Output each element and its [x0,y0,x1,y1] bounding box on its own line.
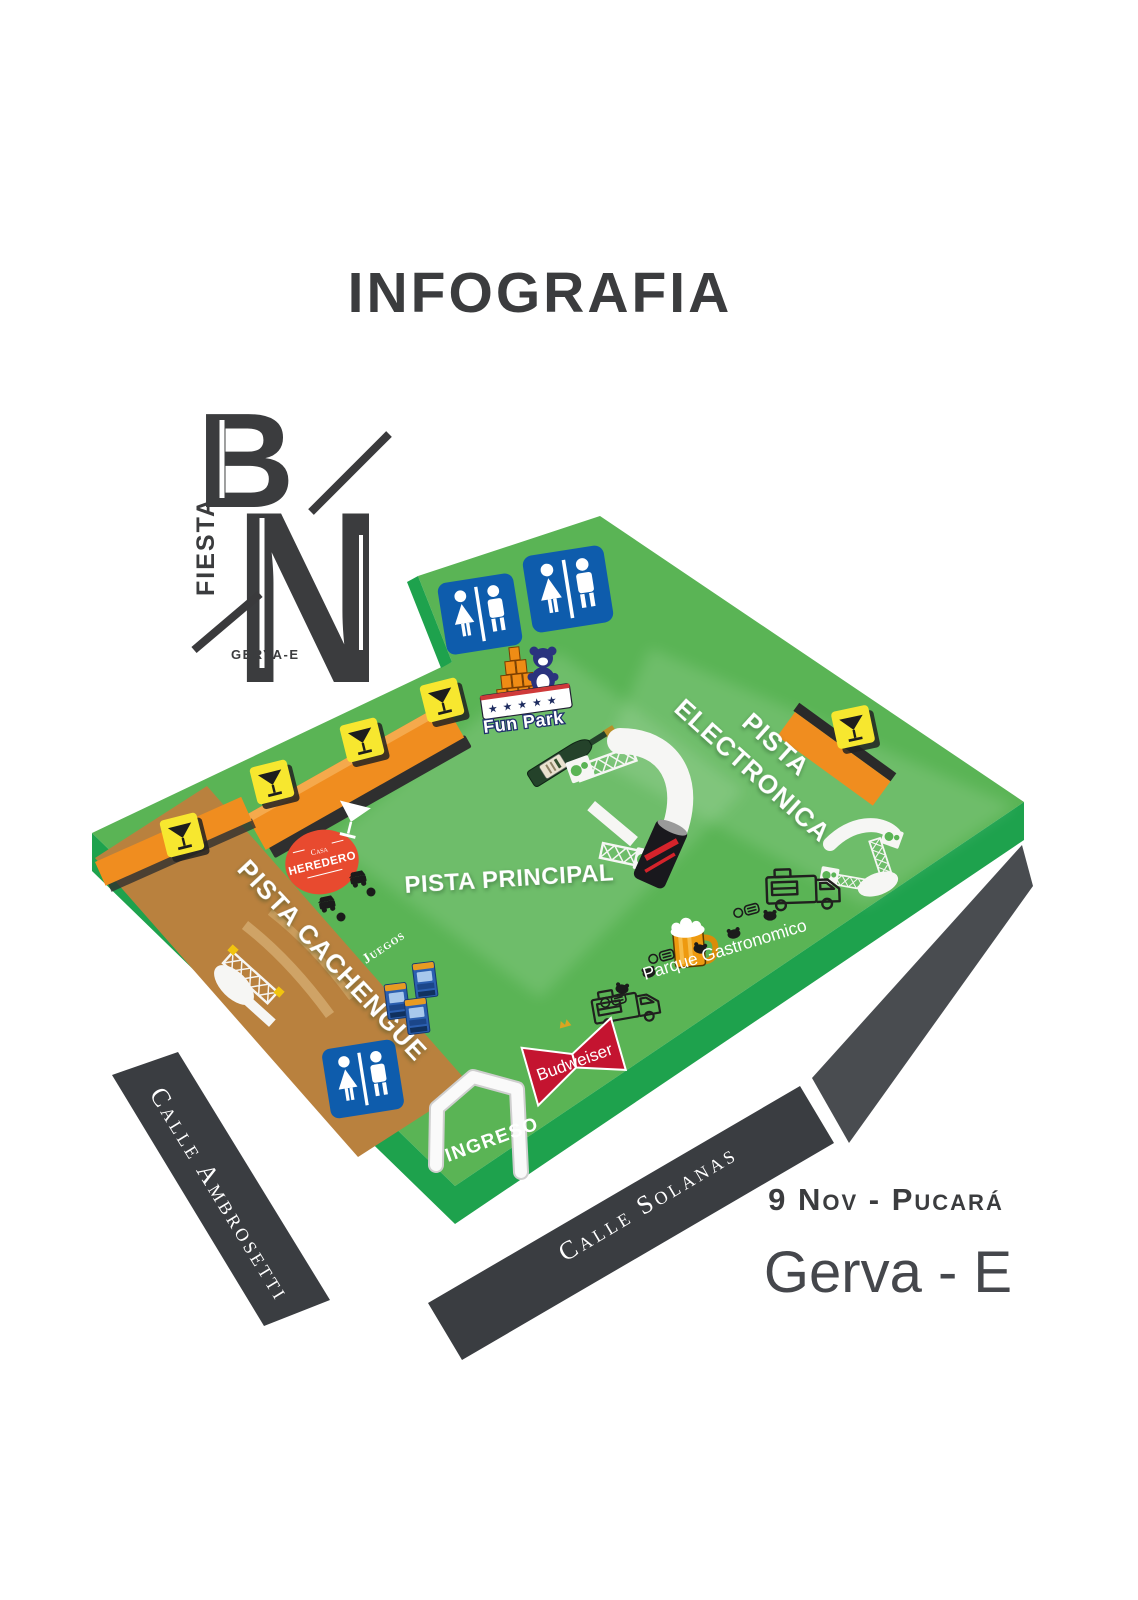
page-title: INFOGRAFIA [348,261,733,325]
arcade-machine-icon [412,961,438,998]
fiesta-bn-logo: B N FIESTA GERVA-E [192,385,389,734]
cart-dot [367,888,376,897]
logo-subtitle: GERVA-E [231,647,300,662]
logo-fiesta-vertical: FIESTA [192,497,220,596]
cart-dot [337,913,346,922]
chicken-icon [763,910,776,921]
arcade-machine-icon [404,997,430,1034]
restroom-sign-icon [437,572,524,656]
event-date-location: 9 Nov - Pucará [768,1182,1004,1217]
restroom-sign-icon [521,544,614,634]
restroom-sign-icon [321,1038,405,1119]
event-infographic-poster: INFOGRAFIA B N FIESTA GERVA-E Calle Ambr… [0,0,1138,1600]
artist-name: Gerva - E [764,1240,1012,1305]
street-label-ambrosetti: Calle Ambrosetti [144,1082,297,1306]
